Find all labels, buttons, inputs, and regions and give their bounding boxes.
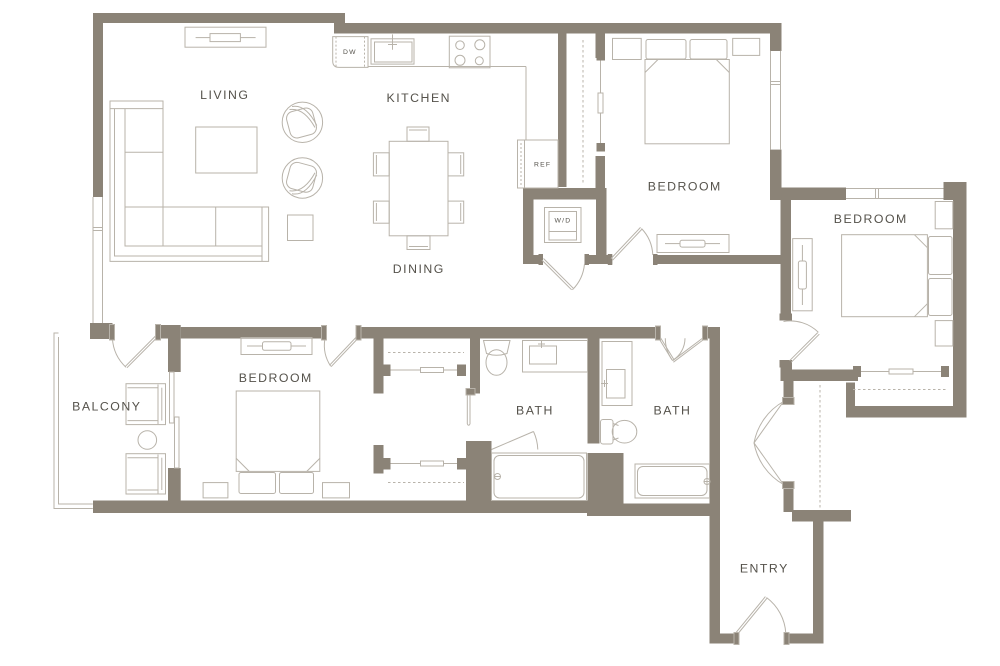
svg-text:BATH: BATH (654, 404, 692, 418)
svg-text:LIVING: LIVING (200, 88, 249, 102)
svg-text:ENTRY: ENTRY (740, 562, 789, 576)
svg-text:BEDROOM: BEDROOM (648, 180, 722, 194)
svg-text:KITCHEN: KITCHEN (387, 91, 451, 105)
svg-text:DW: DW (343, 49, 357, 56)
svg-text:BEDROOM: BEDROOM (239, 371, 313, 385)
svg-text:DINING: DINING (393, 262, 445, 276)
svg-text:W/D: W/D (555, 218, 572, 225)
svg-text:BATH: BATH (516, 404, 554, 418)
svg-text:BEDROOM: BEDROOM (834, 212, 908, 226)
svg-text:BALCONY: BALCONY (72, 400, 141, 414)
svg-text:REF: REF (534, 162, 551, 169)
